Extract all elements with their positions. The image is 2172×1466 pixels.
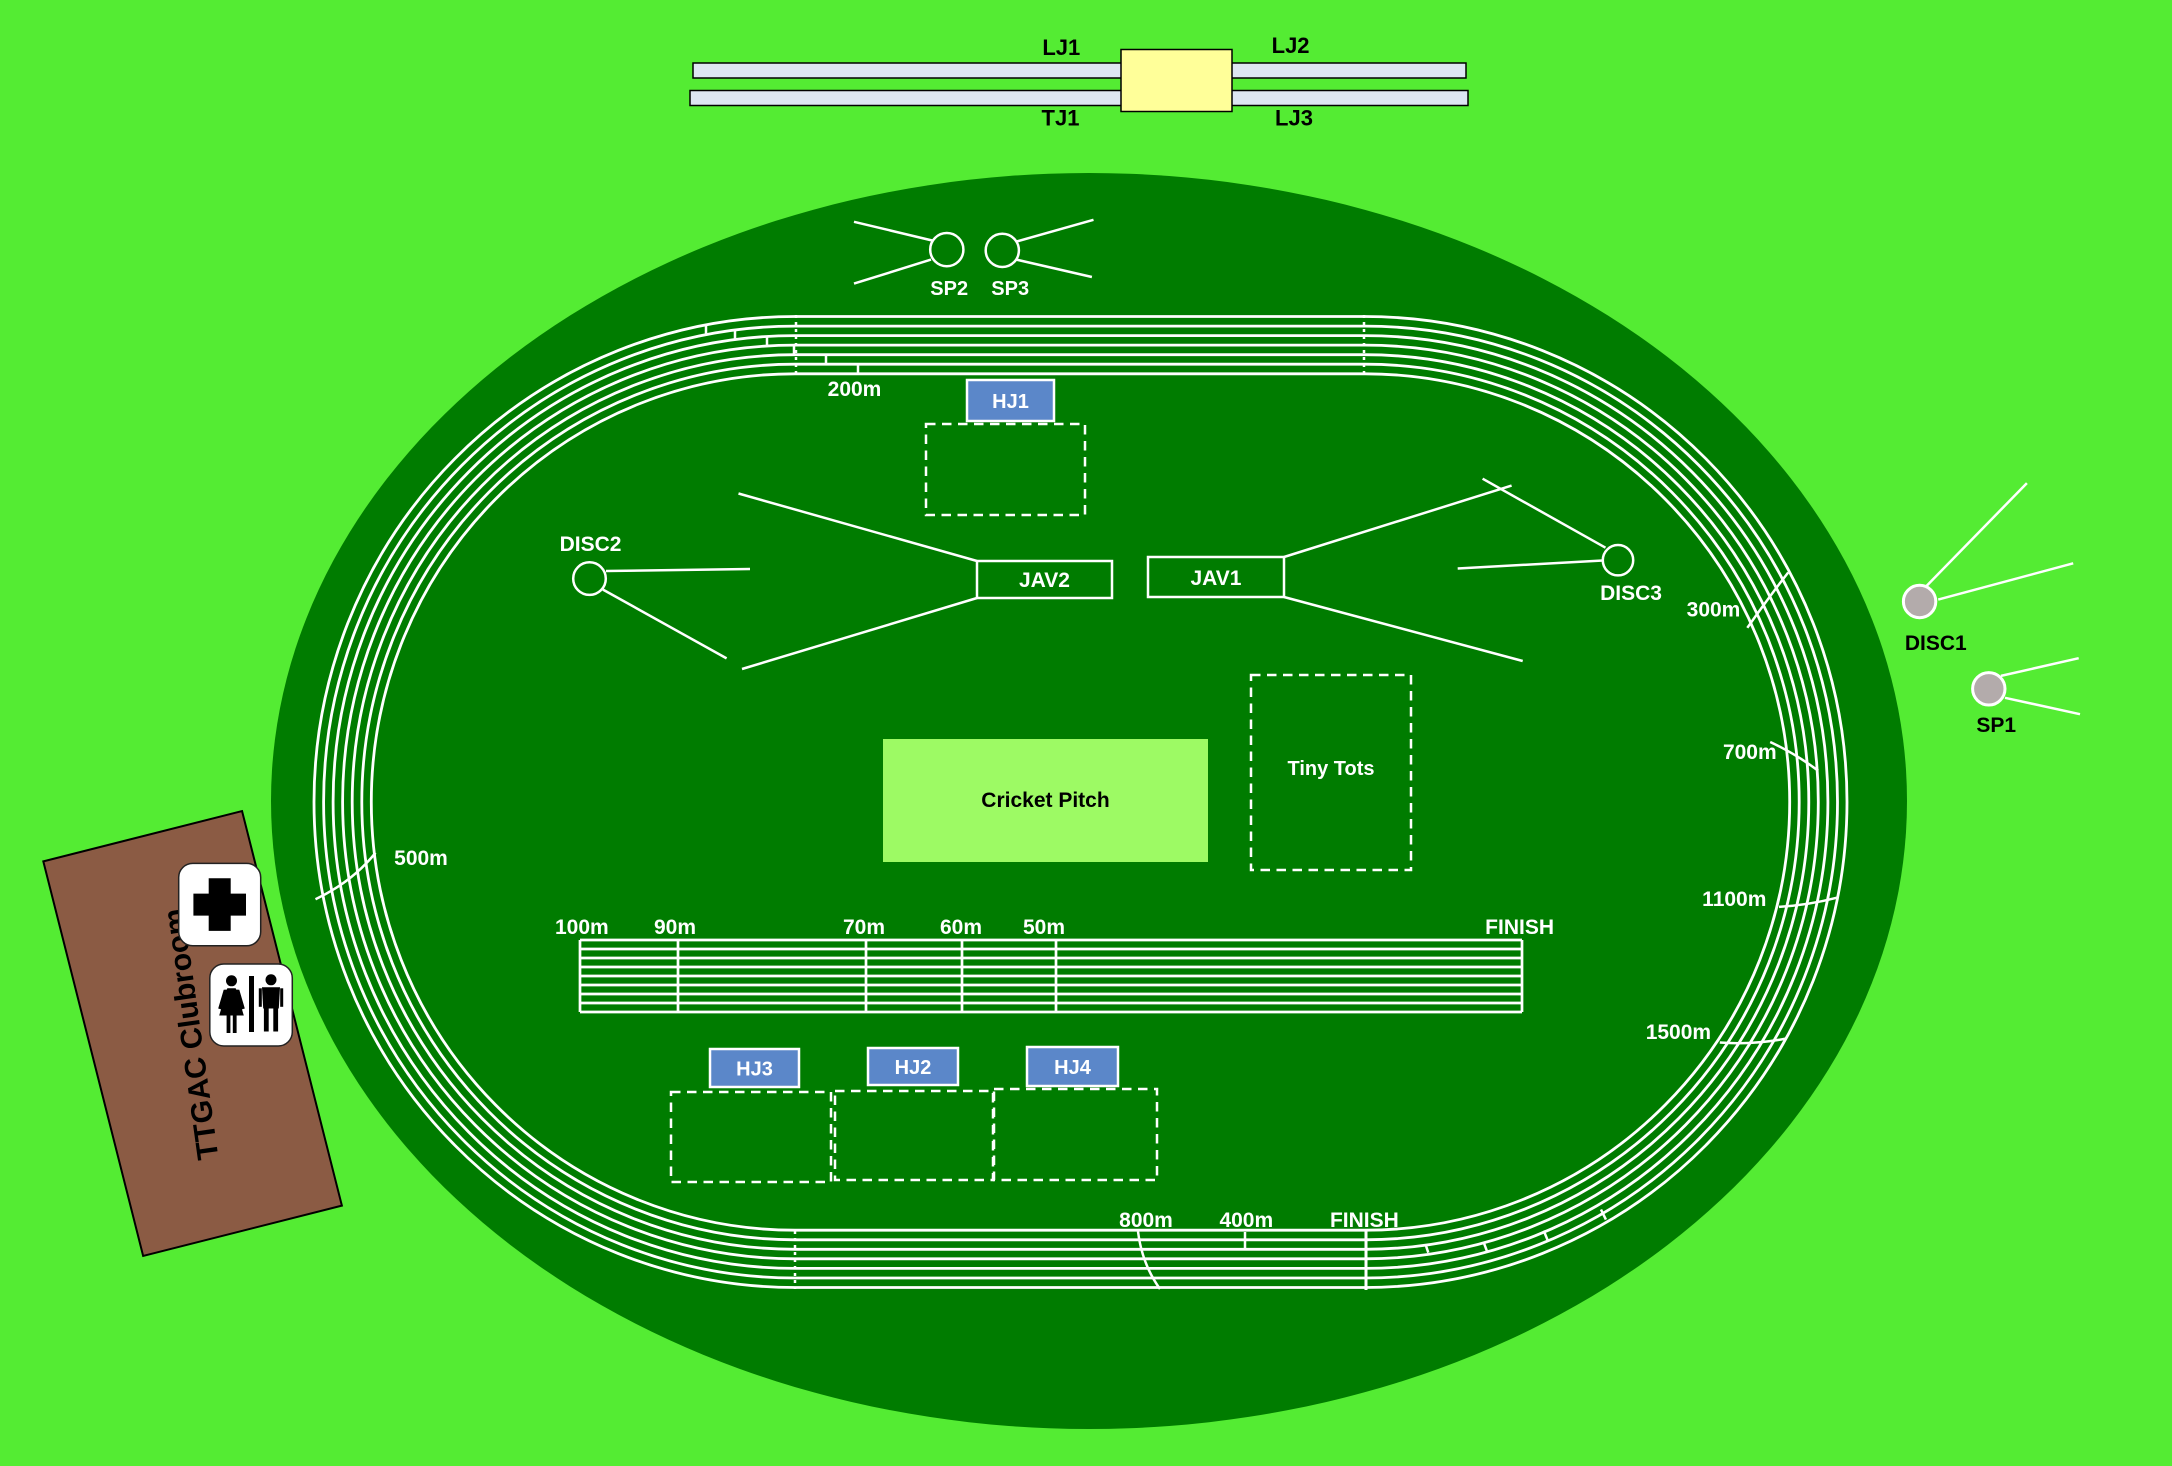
svg-text:70m: 70m bbox=[843, 916, 885, 939]
svg-text:FINISH: FINISH bbox=[1485, 916, 1554, 939]
svg-text:SP1: SP1 bbox=[1976, 714, 2016, 737]
svg-text:Cricket Pitch: Cricket Pitch bbox=[981, 789, 1109, 812]
svg-text:100m: 100m bbox=[555, 916, 609, 939]
svg-text:LJ1: LJ1 bbox=[1042, 35, 1080, 60]
svg-text:90m: 90m bbox=[654, 916, 696, 939]
svg-text:LJ3: LJ3 bbox=[1275, 106, 1313, 131]
svg-text:FINISH: FINISH bbox=[1330, 1209, 1399, 1232]
svg-text:JAV1: JAV1 bbox=[1191, 567, 1242, 590]
svg-text:HJ4: HJ4 bbox=[1054, 1057, 1092, 1079]
svg-text:Tiny Tots: Tiny Tots bbox=[1287, 758, 1374, 780]
svg-text:HJ2: HJ2 bbox=[895, 1057, 932, 1079]
svg-text:800m: 800m bbox=[1119, 1209, 1173, 1232]
svg-text:SP3: SP3 bbox=[991, 278, 1029, 300]
svg-text:HJ3: HJ3 bbox=[736, 1059, 773, 1081]
svg-text:400m: 400m bbox=[1219, 1209, 1273, 1232]
svg-text:60m: 60m bbox=[940, 916, 982, 939]
svg-text:500m: 500m bbox=[394, 847, 448, 870]
svg-text:700m: 700m bbox=[1723, 741, 1777, 764]
svg-text:300m: 300m bbox=[1687, 599, 1741, 622]
svg-text:DISC1: DISC1 bbox=[1905, 632, 1967, 655]
svg-text:200m: 200m bbox=[828, 378, 882, 401]
svg-text:DISC2: DISC2 bbox=[560, 533, 622, 556]
svg-text:JAV2: JAV2 bbox=[1019, 569, 1070, 592]
svg-text:LJ2: LJ2 bbox=[1272, 33, 1310, 58]
svg-text:1500m: 1500m bbox=[1646, 1021, 1711, 1044]
svg-text:DISC3: DISC3 bbox=[1600, 582, 1662, 605]
svg-text:SP2: SP2 bbox=[930, 278, 968, 300]
svg-text:TJ1: TJ1 bbox=[1042, 106, 1080, 131]
svg-text:50m: 50m bbox=[1023, 916, 1065, 939]
svg-text:1100m: 1100m bbox=[1702, 888, 1766, 911]
svg-text:HJ1: HJ1 bbox=[992, 391, 1029, 413]
